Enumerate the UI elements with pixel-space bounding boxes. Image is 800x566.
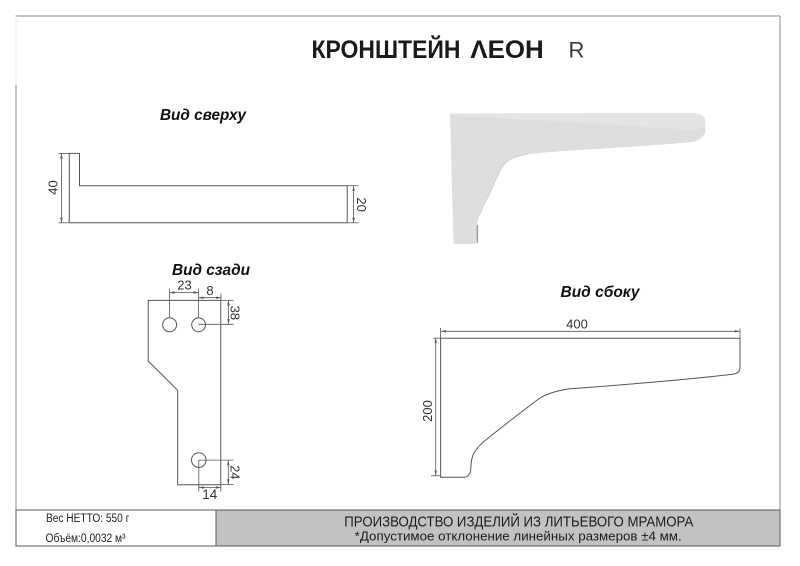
svg-text:400: 400 (566, 317, 588, 332)
svg-text:14: 14 (202, 487, 218, 502)
svg-text:Вес НЕТТО: 550 г: Вес НЕТТО: 550 г (46, 511, 130, 525)
svg-text:40: 40 (45, 180, 60, 194)
svg-text:R: R (569, 38, 585, 63)
svg-text:Вид сзади: Вид сзади (172, 262, 251, 279)
svg-text:23: 23 (177, 277, 191, 292)
svg-text:Вид сбоку: Вид сбоку (561, 284, 641, 301)
svg-text:ΛЕОН: ΛЕОН (470, 36, 544, 64)
svg-text:*Допустимое отклонение линейны: *Допустимое отклонение линейных размеров… (355, 528, 682, 543)
svg-text:38: 38 (228, 306, 243, 320)
svg-text:20: 20 (354, 197, 369, 211)
svg-text:КРОНШТЕЙН: КРОНШТЕЙН (312, 34, 461, 64)
svg-text:Вид сверху: Вид сверху (160, 107, 247, 124)
svg-text:8: 8 (206, 283, 213, 298)
svg-text:Объём:0,0032 м³: Объём:0,0032 м³ (46, 531, 126, 545)
svg-text:24: 24 (228, 465, 243, 479)
svg-text:200: 200 (420, 400, 435, 422)
